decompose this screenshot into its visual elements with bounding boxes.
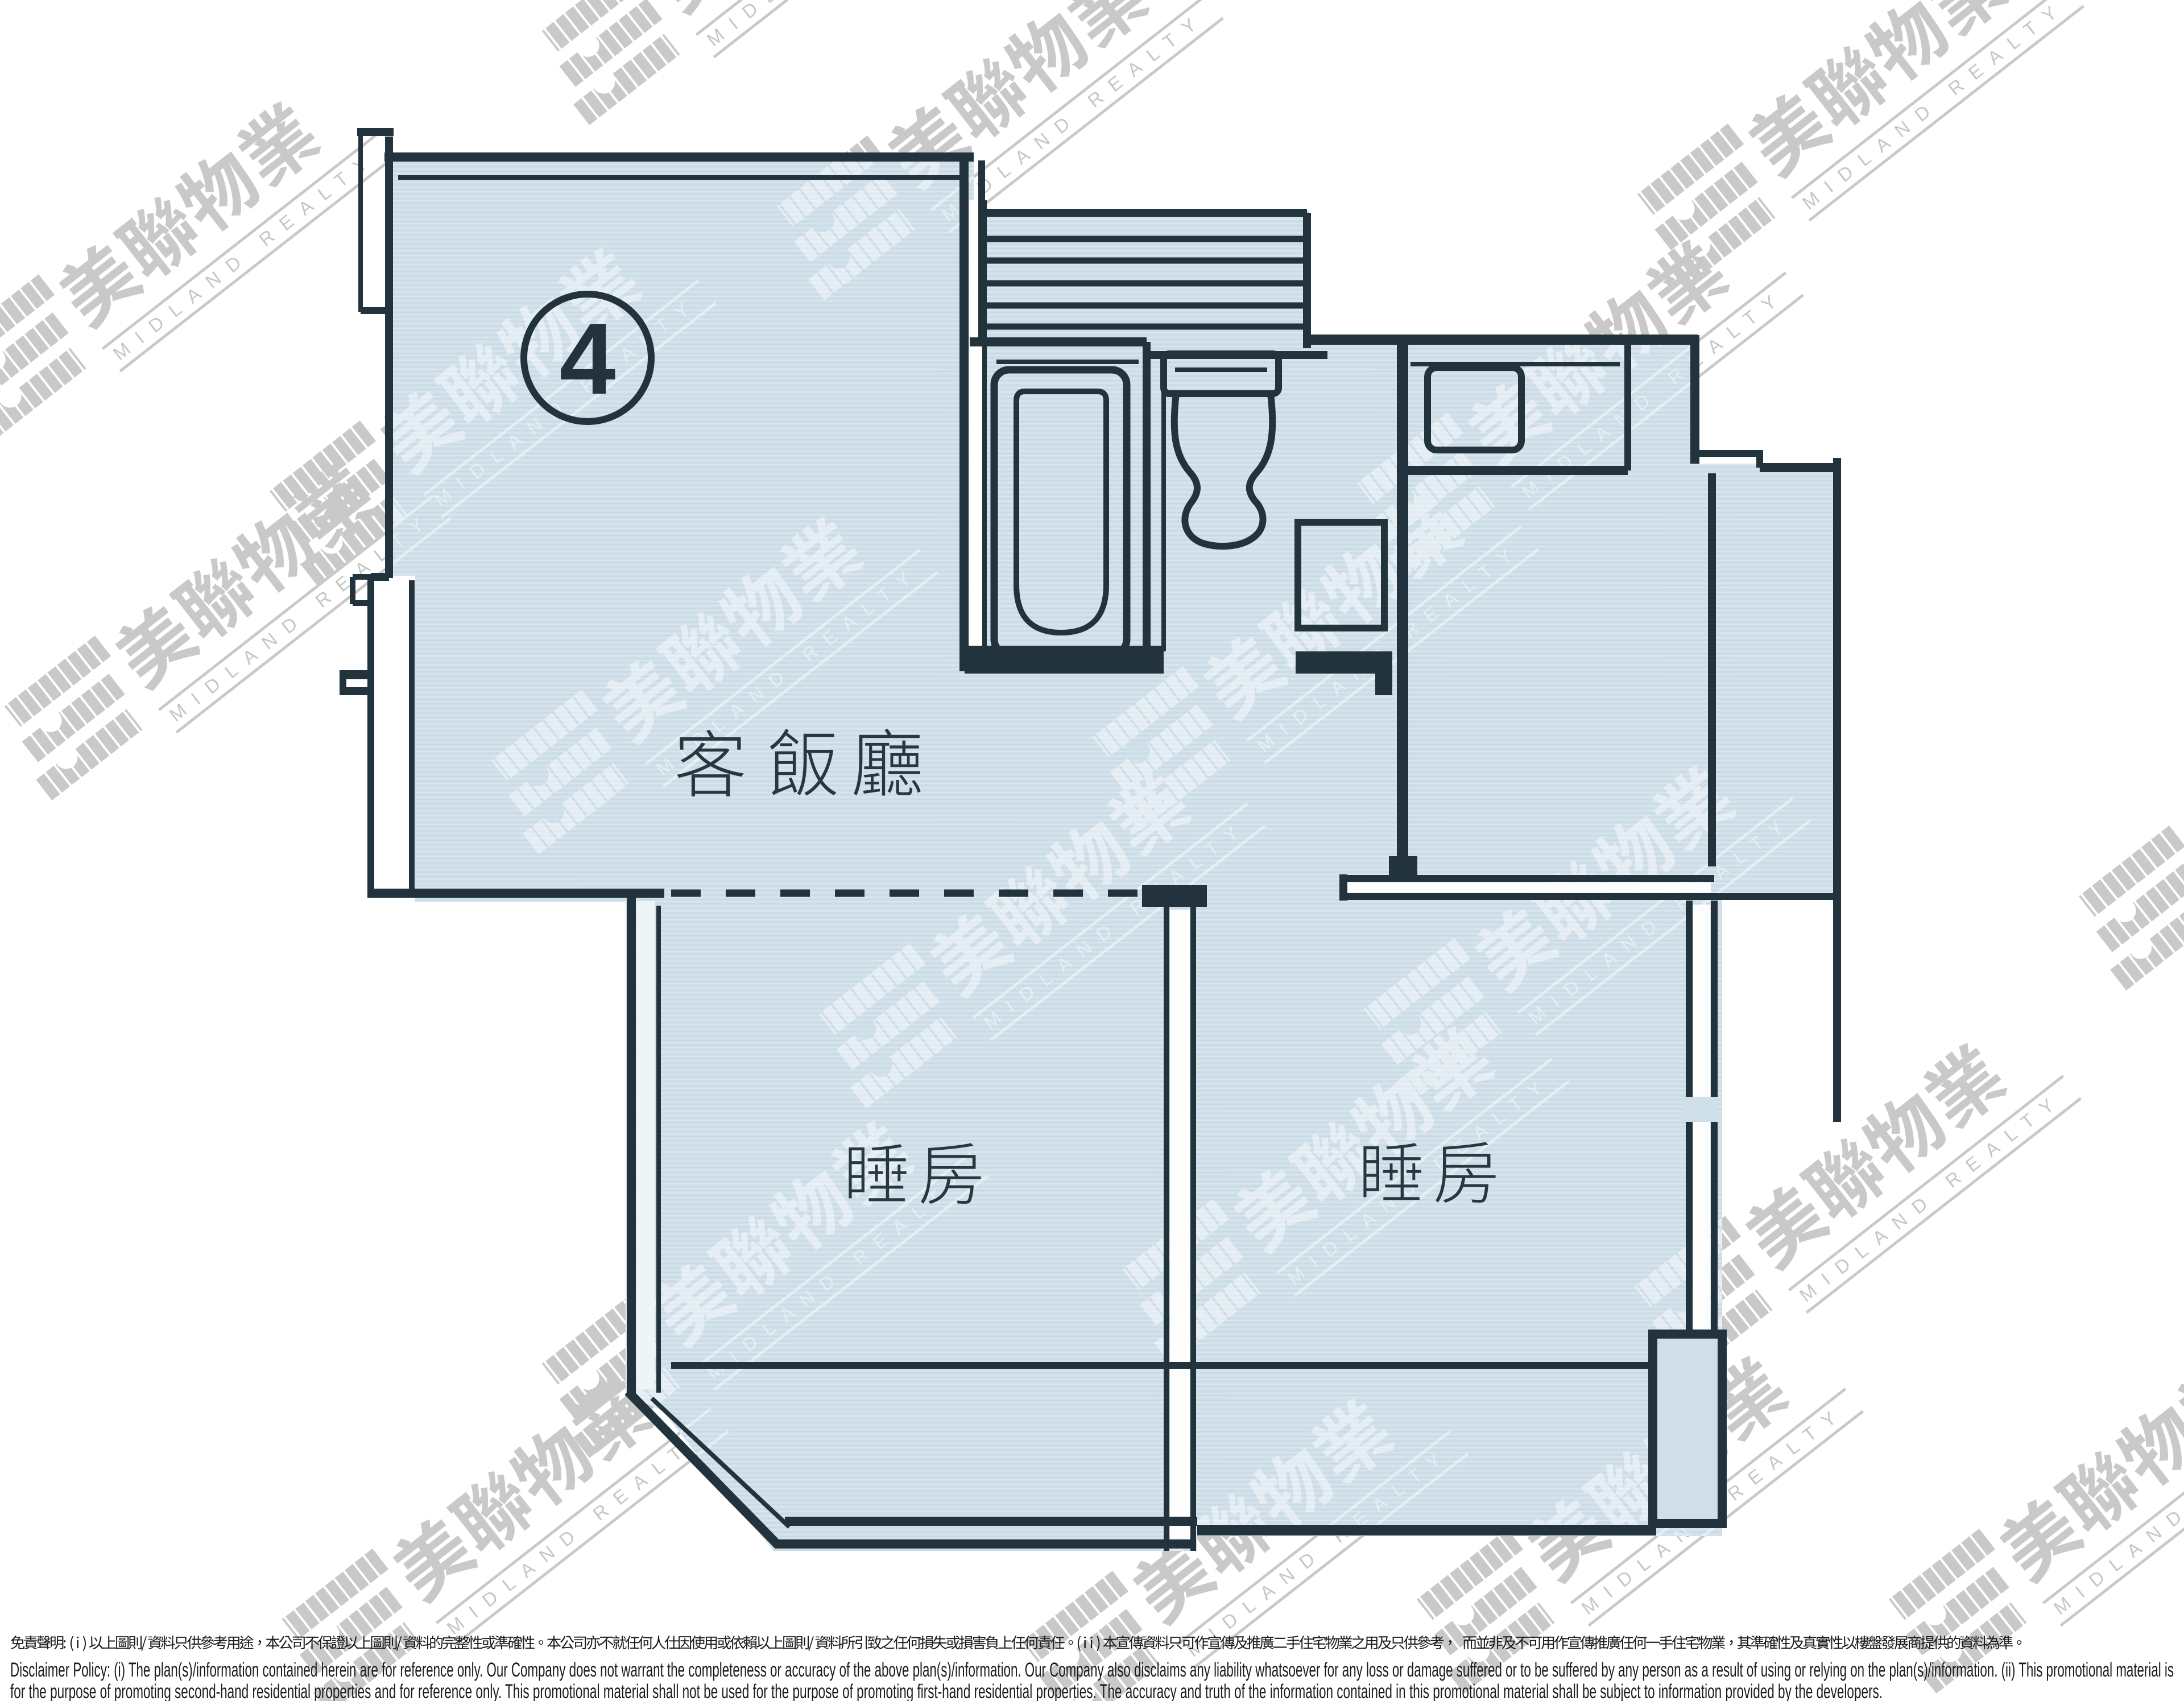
svg-text:4: 4 [560,302,616,415]
svg-text:Disclaimer Policy: (i) The pla: Disclaimer Policy: (i) The plan(s)/infor… [10,1659,2174,1681]
svg-text:for the purpose of promoting s: for the purpose of promoting second-hand… [10,1681,1883,1701]
